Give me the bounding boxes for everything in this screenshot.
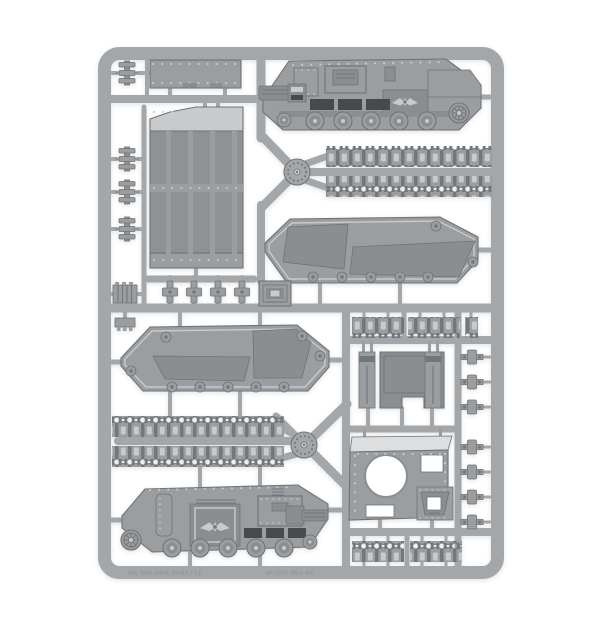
part-hull-side-outer-bottom: [121, 485, 328, 557]
part-hull-plate: [150, 60, 241, 88]
gun-assembly: [259, 84, 306, 102]
track-run-bottom-1: [112, 416, 284, 437]
part-floor-panel: [150, 107, 243, 268]
part-hull-side-inner-right: [265, 217, 478, 283]
sprue-hub-top: [284, 159, 310, 185]
part-hull-side-inner-left: [121, 325, 329, 392]
part-hull-side-outer-top: [259, 59, 481, 130]
part-square-hatch-center: [259, 281, 291, 306]
sprue-photo: AW 996·HRM 3RM62 LG W7050 IWG 66: [0, 0, 600, 620]
part-deck-plate: [349, 428, 453, 520]
sprue-hub-bottom: [291, 432, 317, 458]
deck-hatch-frame: [417, 487, 453, 520]
track-section-1: [352, 317, 404, 338]
track-section-4: [410, 541, 462, 562]
track-section-2: [408, 317, 460, 338]
molded-text-left: AW 996·HRM 3RM62 LG: [128, 570, 203, 577]
molded-text-right: W7050 IWG 66: [266, 570, 313, 577]
track-run-top-1: [326, 146, 492, 167]
track-link-single: [465, 317, 478, 338]
track-run-bottom-2: [112, 446, 284, 467]
track-run-top-2: [326, 176, 492, 197]
track-section-3: [352, 541, 404, 562]
